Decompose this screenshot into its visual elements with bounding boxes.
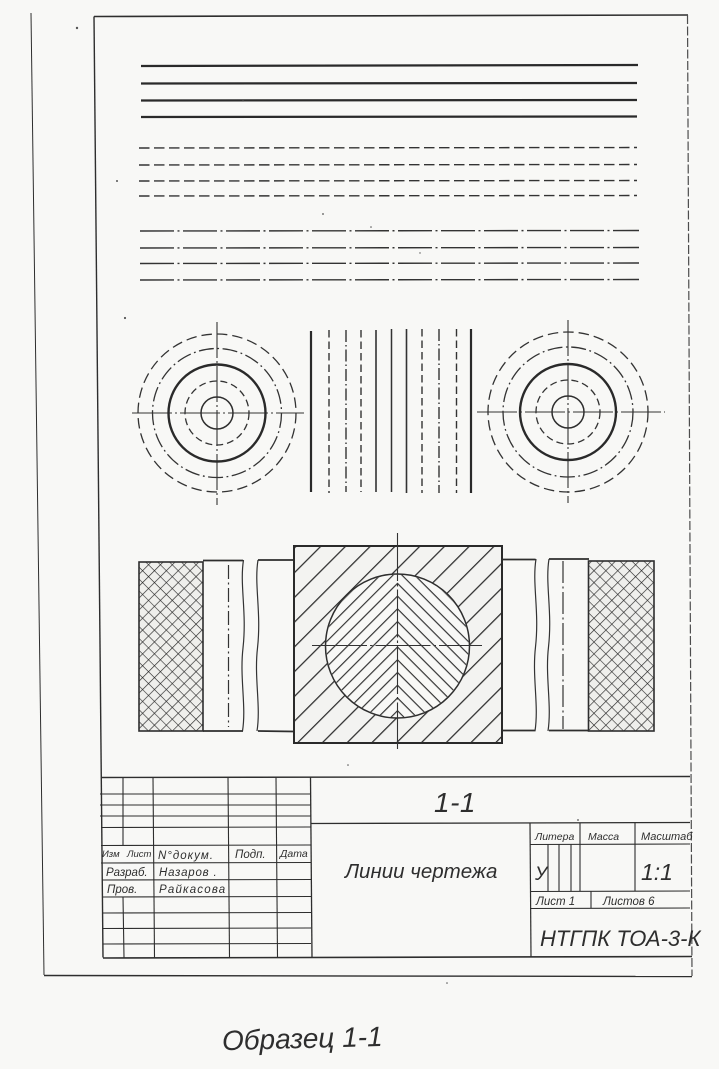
svg-text:НТГПК ТОА-3-К: НТГПК ТОА-3-К xyxy=(540,926,701,951)
svg-text:Назаров .: Назаров . xyxy=(159,867,217,879)
svg-text:Пров.: Пров. xyxy=(107,884,137,896)
svg-text:Образец 1-1: Образец 1-1 xyxy=(222,1021,383,1056)
svg-text:Масса: Масса xyxy=(588,831,619,843)
svg-text:Дата: Дата xyxy=(279,848,308,860)
svg-text:Листов 6: Листов 6 xyxy=(602,896,655,908)
svg-text:У: У xyxy=(534,864,549,885)
svg-text:1:1: 1:1 xyxy=(641,859,673,885)
svg-text:Литера: Литера xyxy=(534,831,574,843)
svg-text:Масштаб: Масштаб xyxy=(641,831,693,843)
svg-text:Лист 1: Лист 1 xyxy=(535,896,575,908)
svg-text:Лист: Лист xyxy=(126,849,152,860)
svg-text:Райкасова: Райкасова xyxy=(159,884,226,896)
svg-text:N°докум.: N°докум. xyxy=(158,850,214,862)
svg-text:Изм: Изм xyxy=(102,849,120,860)
svg-text:Подп.: Подп. xyxy=(235,849,266,861)
svg-text:Разраб.: Разраб. xyxy=(106,867,148,879)
svg-text:1-1: 1-1 xyxy=(434,787,476,818)
svg-text:Линии чертежа: Линии чертежа xyxy=(343,860,497,883)
